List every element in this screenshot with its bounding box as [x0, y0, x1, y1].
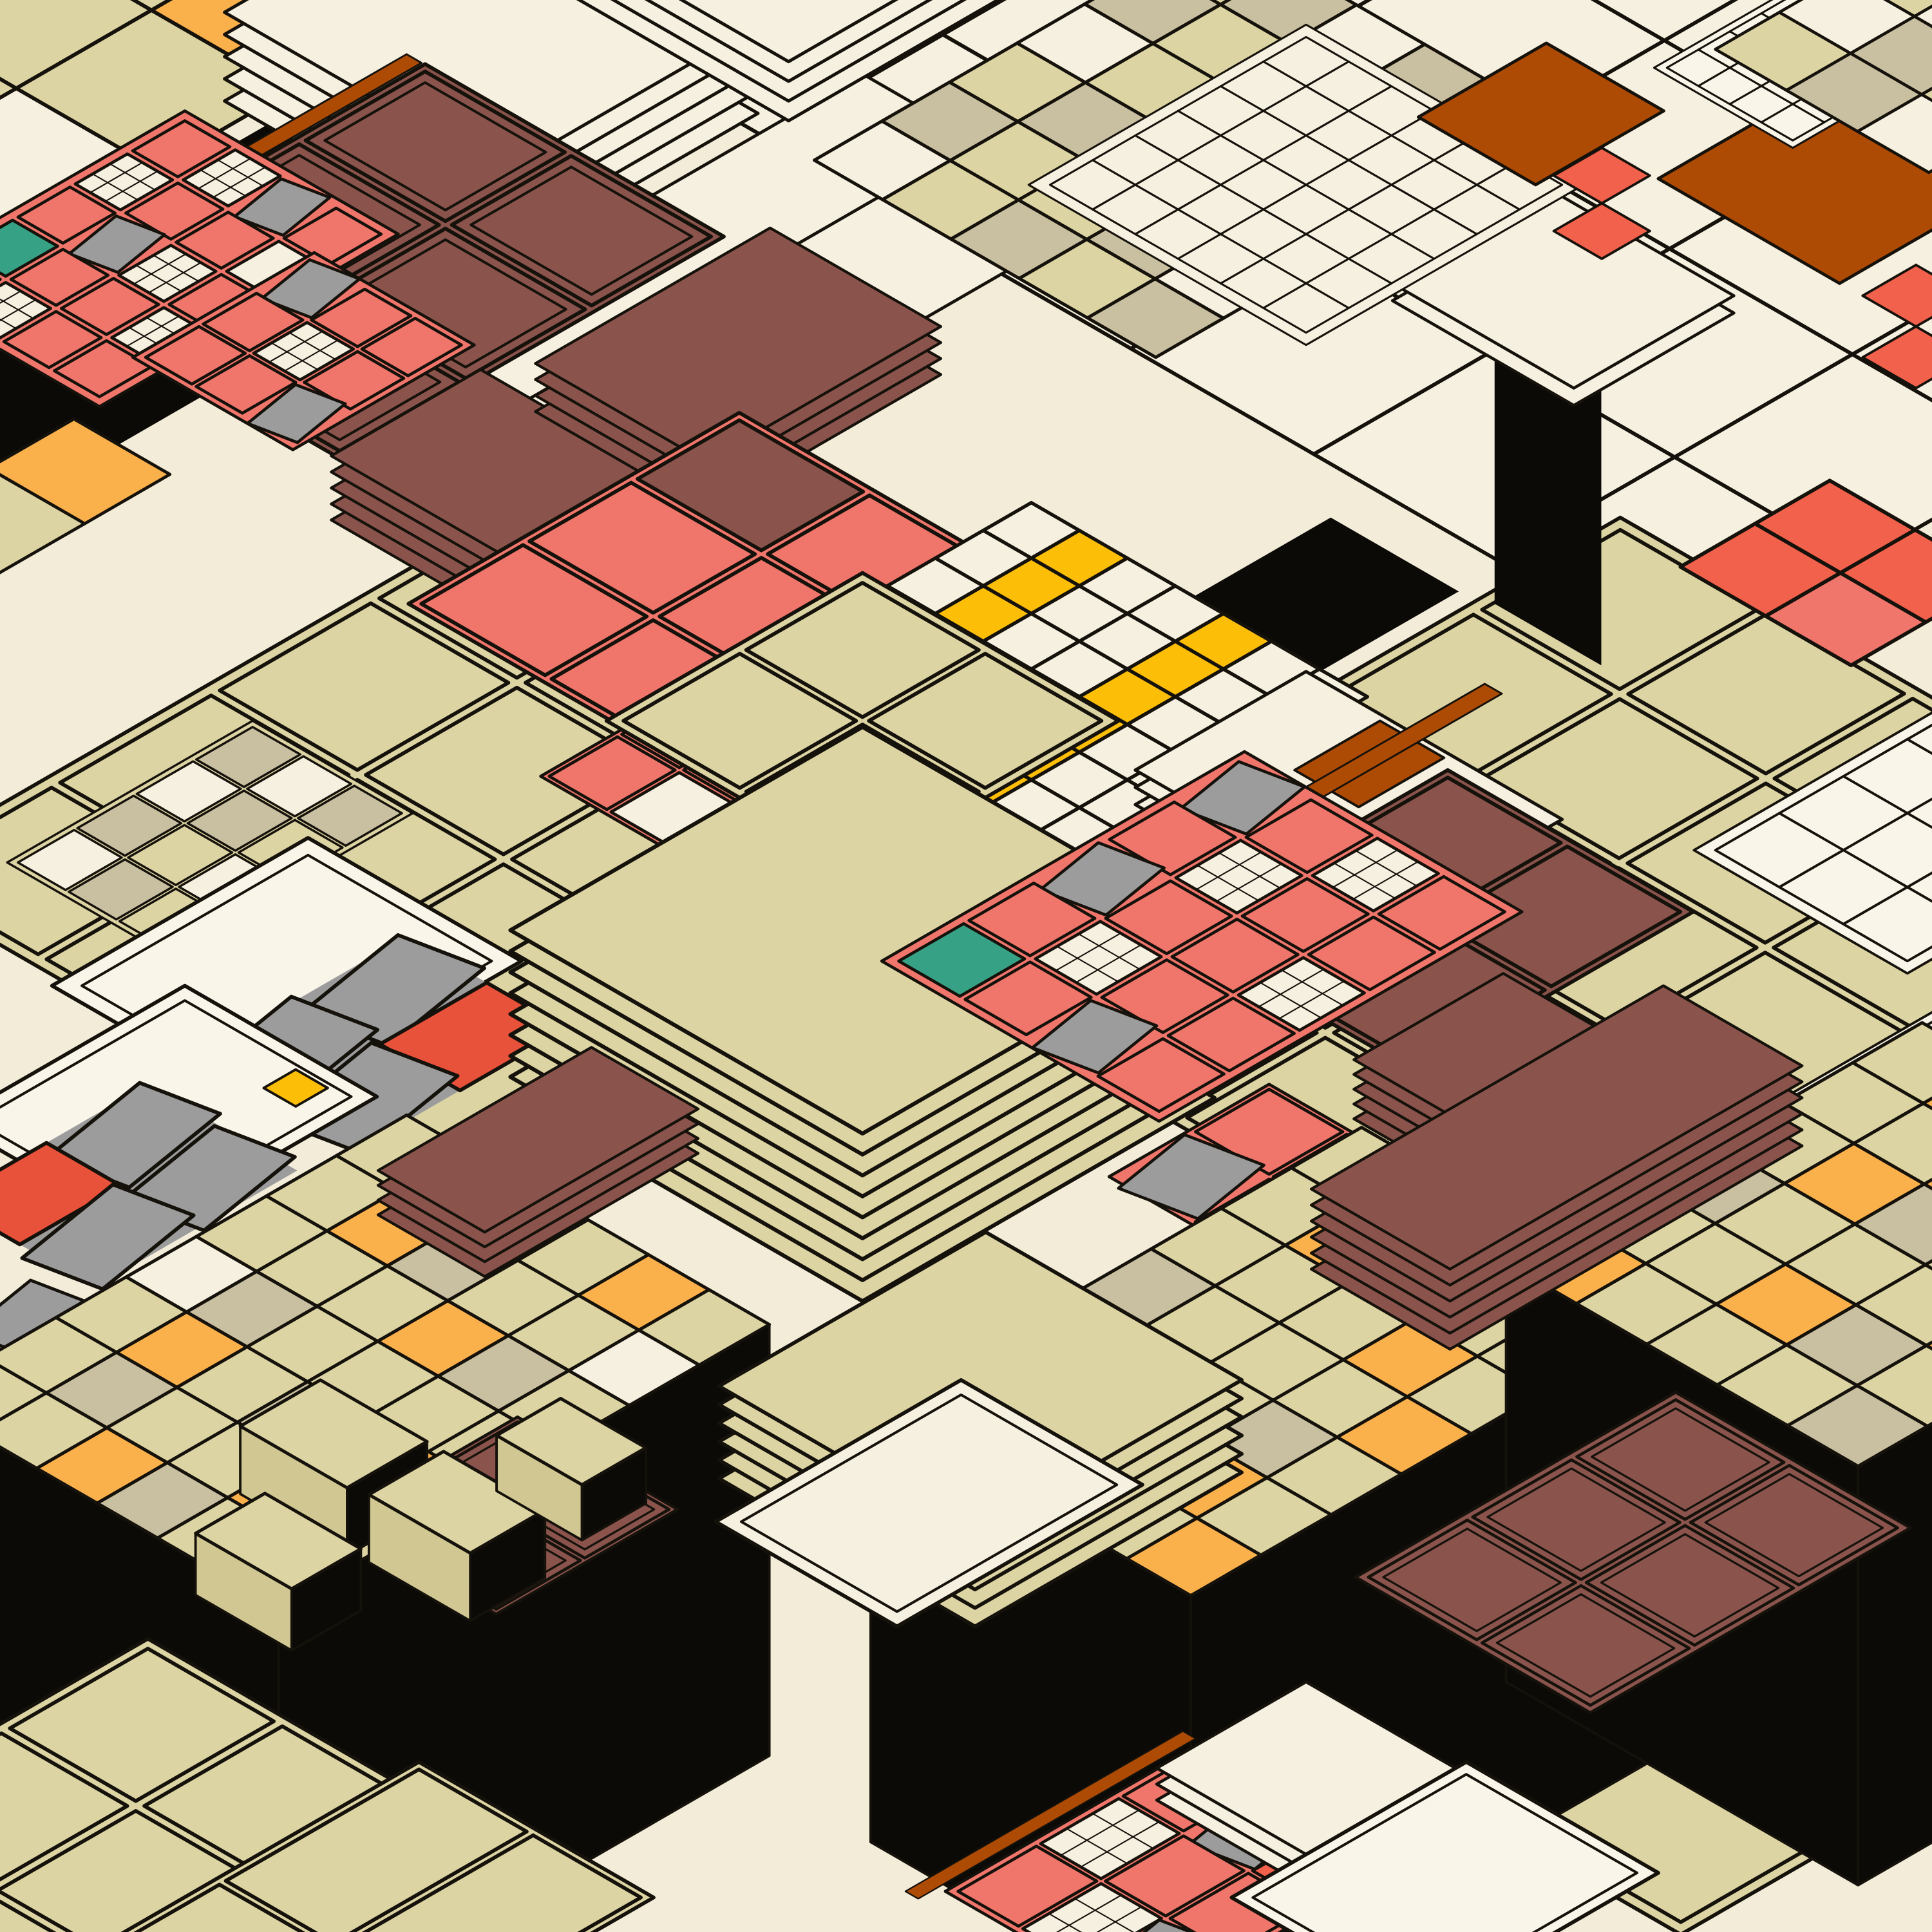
artwork-canvas — [0, 0, 1932, 1932]
generative-isometric-artwork — [0, 0, 1932, 1932]
